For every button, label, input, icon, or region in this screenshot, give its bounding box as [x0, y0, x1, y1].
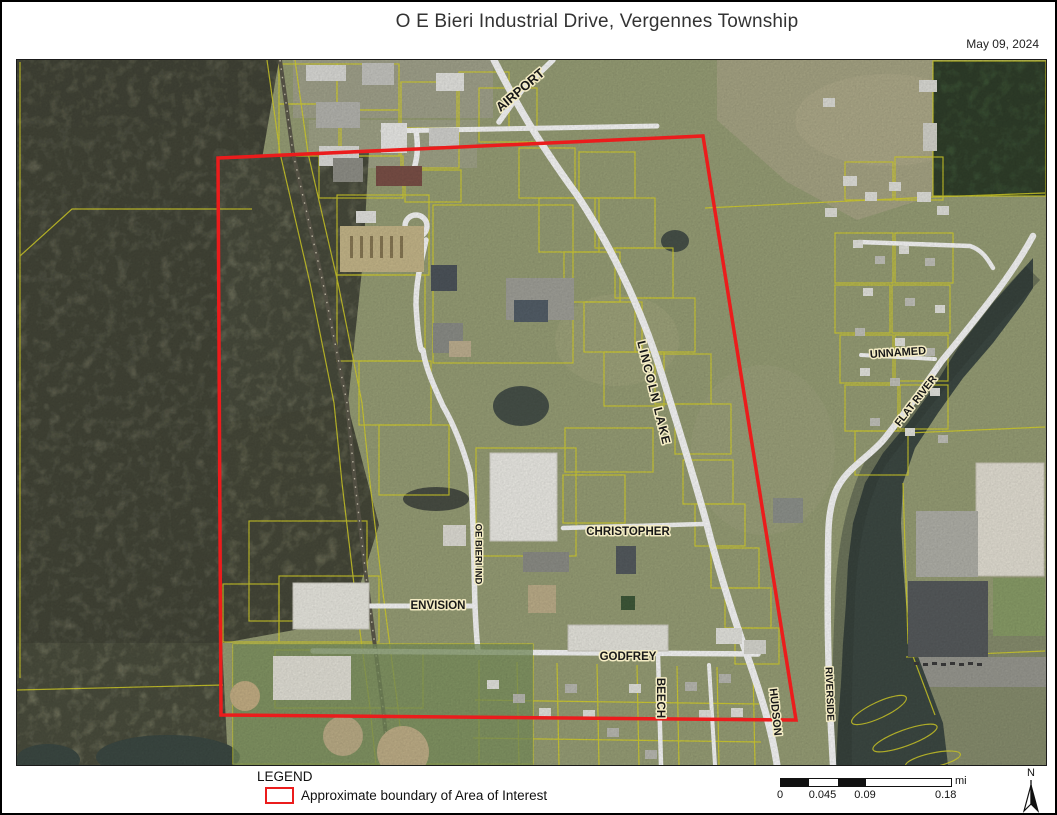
scale-ticks: 0 0.045 0.09 0.18 — [780, 789, 950, 803]
scale-bar: mi 0 0.045 0.09 0.18 — [780, 778, 980, 803]
page-title: O E Bieri Industrial Drive, Vergennes To… — [82, 11, 1057, 33]
road-label-envision: ENVISION — [411, 600, 466, 612]
north-arrow-icon — [1019, 778, 1043, 814]
road-label-riverside: RIVERSIDE — [823, 667, 836, 722]
road-label-christopher: CHRISTOPHER — [586, 526, 670, 538]
road-label-godfrey: GODFREY — [600, 651, 657, 663]
aerial-map: AIRPORT LINCOLN LAKE UNNAMED FLAT RIVER … — [16, 59, 1047, 766]
north-arrow: N — [1018, 768, 1044, 815]
map-date: May 09, 2024 — [966, 37, 1039, 51]
aoi-boundary-swatch — [265, 787, 294, 804]
scale-tick-0: 0 — [777, 789, 783, 801]
north-label: N — [1018, 768, 1044, 778]
legend-item-aoi: Approximate boundary of Area of Interest — [265, 787, 547, 804]
scale-unit: mi — [955, 775, 967, 787]
scale-tick-1: 0.045 — [809, 789, 837, 801]
legend: LEGEND Approximate boundary of Area of I… — [257, 769, 547, 804]
scale-tick-3: 0.18 — [935, 789, 956, 801]
scale-tick-2: 0.09 — [854, 789, 875, 801]
road-label-beech: BEECH — [654, 678, 666, 718]
road-label-oe-bieri-ind: OE BIERI IND — [473, 524, 484, 585]
legend-title: LEGEND — [257, 769, 547, 784]
map-document-page: O E Bieri Industrial Drive, Vergennes To… — [0, 0, 1057, 815]
scale-bar-graphic — [780, 778, 952, 787]
legend-item-label: Approximate boundary of Area of Interest — [301, 788, 547, 803]
